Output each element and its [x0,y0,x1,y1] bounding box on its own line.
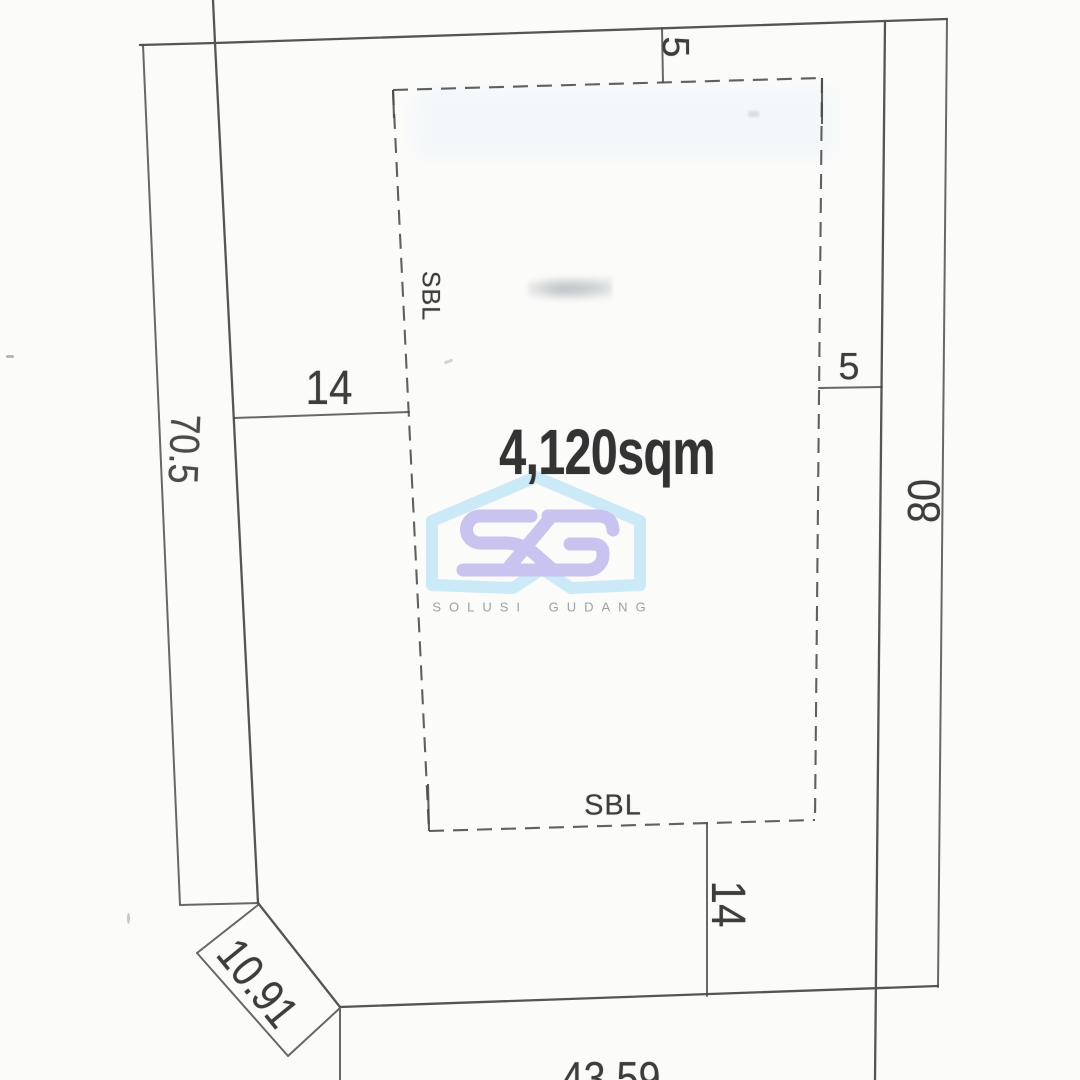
area-label: 4,120sqm [499,420,715,484]
sbl-right-line [815,78,822,820]
plot-boundary [140,0,947,1080]
dimension-lines [143,19,947,1080]
dim-connector-bottom-left [180,903,258,905]
logo-sg-monogram-icon [463,516,613,570]
sbl-bottom-line [429,820,815,831]
left-boundary-line [215,43,258,903]
plot-drawing [0,0,1080,1080]
sbl-left-line [393,90,429,831]
watermark-logo [432,477,640,588]
sbl-top-line [393,78,822,90]
right-boundary-line [875,21,885,1080]
bottom-boundary-line [340,986,938,1007]
scanned-survey-document: 4,120sqm SBL SBL 5 5 14 14 80 70.5 10.91… [0,0,1080,1080]
top-boundary-line [140,19,947,45]
dim-label-right-setback: 5 [838,348,859,386]
dim-label-top-setback: 5 [656,36,694,57]
sbl-label-left: SBL [418,271,443,321]
dim-label-right-boundary: 80 [902,479,947,523]
dim-label-bottom-boundary: 43.59 [561,1056,660,1080]
left-boundary-extension [213,0,215,43]
dim-label-left-setback: 14 [306,365,353,413]
dim-label-bottom-setback: 14 [703,881,751,928]
watermark-brand-text: SOLUSI GUDANG [432,600,653,615]
dim-label-left-boundary: 70.5 [162,413,207,484]
sbl-label-bottom: SBL [584,792,642,821]
